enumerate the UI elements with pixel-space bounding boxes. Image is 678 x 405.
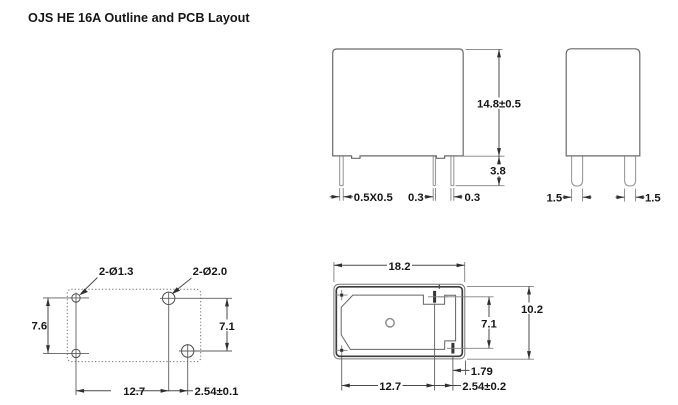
svg-text:0.3: 0.3 (465, 192, 481, 204)
svg-text:2-Ø1.3: 2-Ø1.3 (99, 266, 134, 278)
svg-text:0.5X0.5: 0.5X0.5 (354, 192, 393, 204)
svg-text:0.3: 0.3 (408, 192, 424, 204)
svg-text:7.6: 7.6 (31, 320, 47, 332)
svg-text:1.5: 1.5 (547, 193, 563, 205)
svg-text:10.2: 10.2 (521, 304, 543, 316)
svg-text:2.54±0.2: 2.54±0.2 (462, 381, 506, 393)
svg-text:2.54±0.1: 2.54±0.1 (195, 386, 239, 398)
svg-text:3.8: 3.8 (490, 166, 506, 178)
svg-text:7.1: 7.1 (219, 321, 235, 333)
svg-text:18.2: 18.2 (389, 261, 411, 273)
svg-text:1.79: 1.79 (471, 366, 493, 378)
svg-text:12.7: 12.7 (123, 386, 145, 398)
svg-text:12.7: 12.7 (379, 381, 401, 393)
svg-text:7.1: 7.1 (481, 318, 497, 330)
svg-text:OJS HE 16A Outline and PCB Lay: OJS HE 16A Outline and PCB Layout (28, 11, 250, 25)
svg-text:14.8±0.5: 14.8±0.5 (477, 99, 521, 111)
svg-text:2-Ø2.0: 2-Ø2.0 (193, 266, 228, 278)
svg-text:1.5: 1.5 (645, 193, 661, 205)
